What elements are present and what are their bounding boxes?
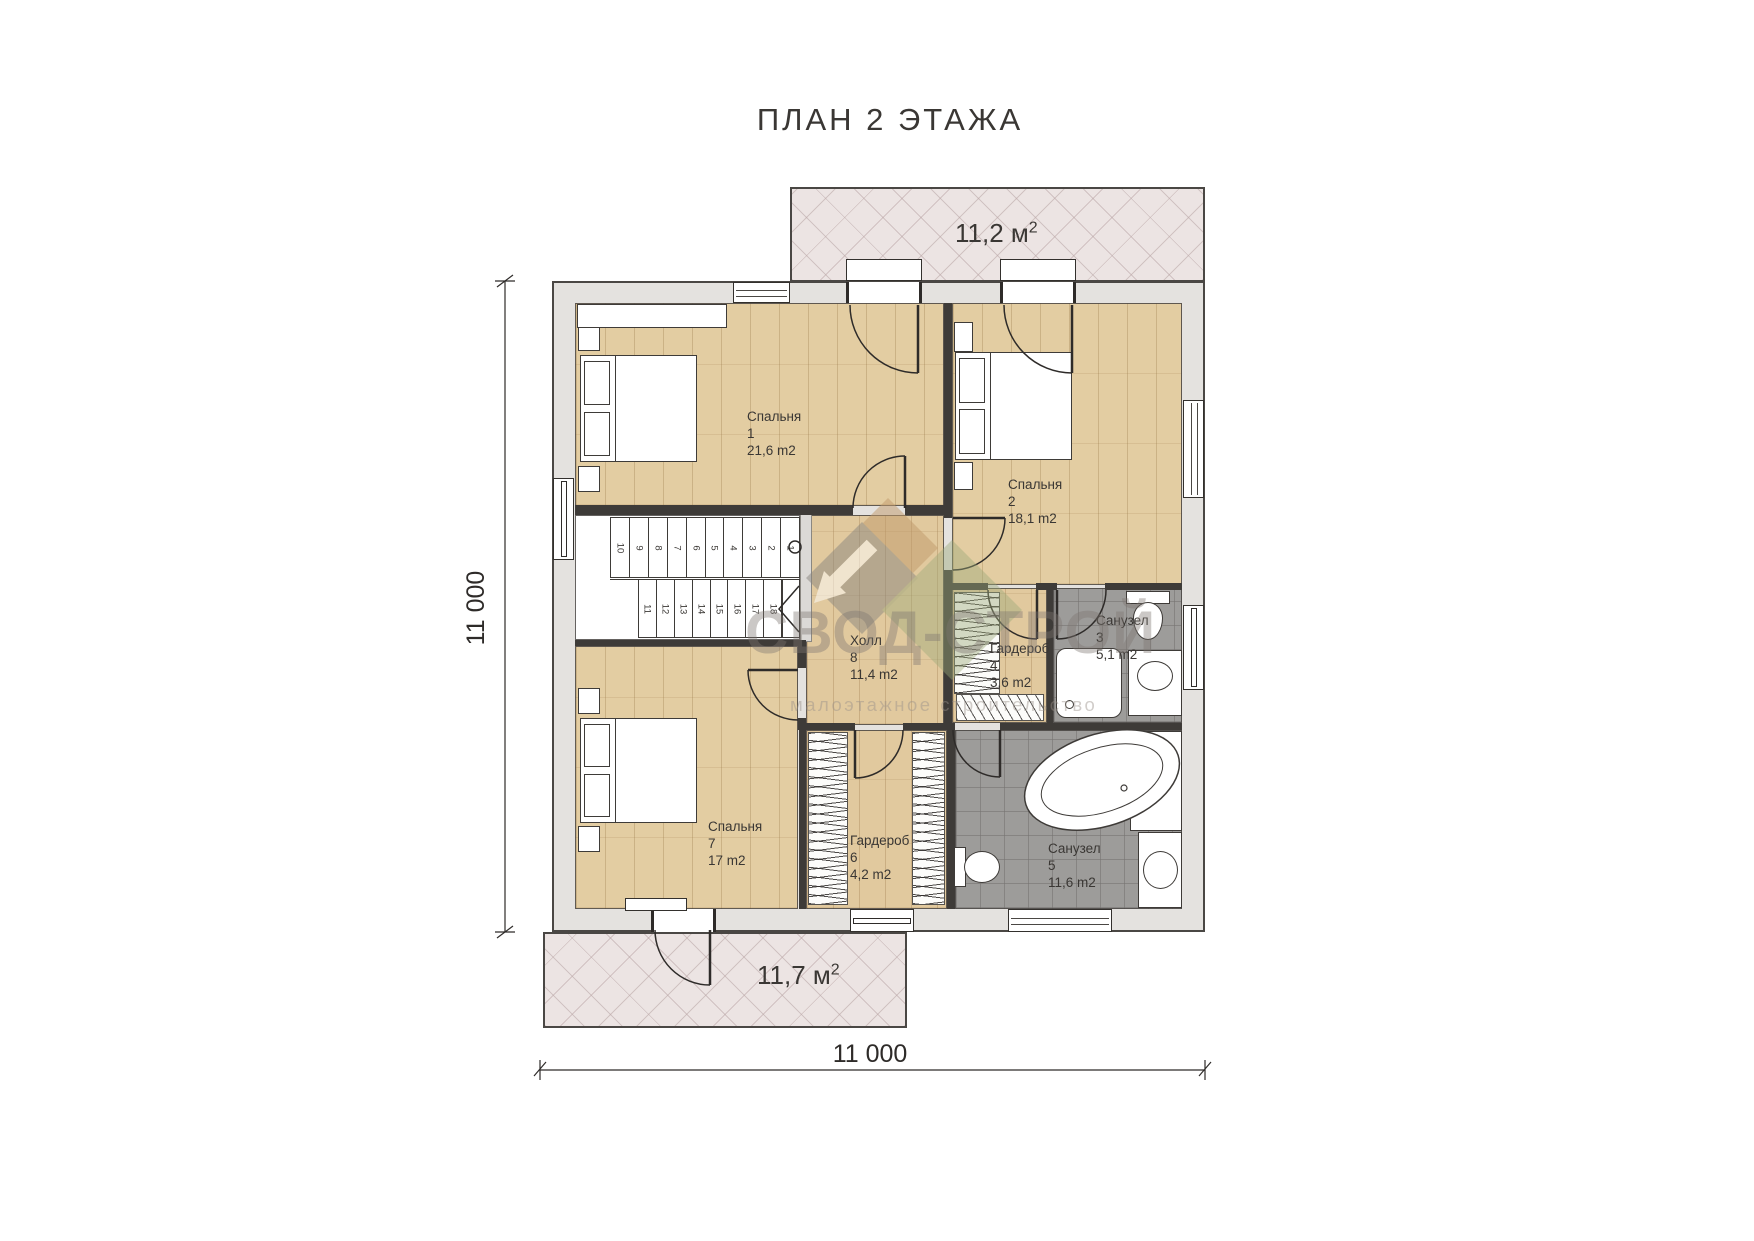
stair-railing <box>800 513 812 642</box>
toilet-bowl-icon <box>964 851 1000 883</box>
stair-flight-up: 10987654321 <box>610 517 800 577</box>
dimension-bottom-label: 11 000 <box>740 1040 1000 1069</box>
nightstand <box>954 462 973 490</box>
stair-step: 11 <box>639 580 657 637</box>
balcony-bottom <box>543 932 907 1028</box>
room-label-bathroom-3: Санузел35,1 m2 <box>1096 612 1149 663</box>
nightstand <box>578 327 600 351</box>
window-bedroom-1 <box>733 282 790 303</box>
bed-bedroom-7 <box>580 718 697 823</box>
sink-basin-icon <box>1143 851 1178 889</box>
window-bathroom-3 <box>1183 605 1204 690</box>
sink-counter-icon <box>1138 832 1182 908</box>
wall-segment <box>944 588 952 723</box>
stair-step: 14 <box>693 580 711 637</box>
stair-step: 5 <box>706 518 725 577</box>
stair-step: 3 <box>743 518 762 577</box>
balcony-door-sill <box>1000 259 1076 281</box>
stair-step: 2 <box>762 518 781 577</box>
wall-segment <box>903 723 955 730</box>
shower-drain-icon <box>1065 700 1074 709</box>
pillow <box>584 774 610 817</box>
balcony-door-opening-bedroom-2 <box>1000 282 1076 303</box>
stair-step: 10 <box>611 518 630 577</box>
stair-step: 4 <box>724 518 743 577</box>
wardrobe-6-rail-right <box>912 732 945 905</box>
bed-divider-line <box>615 356 616 461</box>
room-floor-hall <box>806 515 944 725</box>
wall-segment <box>798 645 806 668</box>
balcony-door-sill <box>846 259 922 281</box>
pillow <box>959 358 985 403</box>
stair-step: 7 <box>668 518 687 577</box>
balcony-top-area-label: 11,2 м2 <box>955 218 1038 249</box>
stair-step: 15 <box>711 580 729 637</box>
wardrobe-4-front-hatch <box>956 694 1044 721</box>
stair-step: 13 <box>675 580 693 637</box>
balcony-door-sill <box>625 898 687 911</box>
wall-segment <box>575 640 806 646</box>
sink-basin-icon <box>1137 661 1173 691</box>
room-label-bedroom-1: Спальня121,6 m2 <box>747 408 801 459</box>
stair-step: 1 <box>781 518 800 577</box>
window-wardrobe-6 <box>850 909 914 932</box>
window-bedroom-2 <box>1183 400 1204 498</box>
wall-segment <box>1105 583 1182 590</box>
stair-step: 16 <box>728 580 746 637</box>
dimension-left-label: 11 000 <box>462 538 491 678</box>
stair-step: 17 <box>746 580 764 637</box>
bathtub-platform <box>1130 731 1182 831</box>
nightstand <box>578 466 600 492</box>
closet-bedroom-1 <box>577 304 727 328</box>
balcony-door-opening-bedroom-7 <box>651 909 716 932</box>
bed-divider-line <box>615 719 616 822</box>
stair-step: 8 <box>649 518 668 577</box>
window-stairwell <box>553 478 574 560</box>
room-label-wardrobe-6: Гардероб64,2 m2 <box>850 832 909 883</box>
stair-arrow-cell <box>782 580 800 638</box>
wardrobe-6-rail-left <box>808 732 848 905</box>
balcony-bottom-area-label: 11,7 м2 <box>757 960 840 991</box>
wall-segment <box>1000 723 1182 730</box>
stair-flight-down: 1112131415161718 <box>638 580 782 638</box>
bed-bedroom-1 <box>580 355 697 462</box>
window-bathroom-5 <box>1008 909 1112 932</box>
pillow <box>584 361 610 405</box>
stair-step: 6 <box>687 518 706 577</box>
stair-step: 18 <box>764 580 782 637</box>
room-label-hall: Холл811,4 m2 <box>850 632 898 683</box>
nightstand <box>578 826 600 852</box>
wall-segment <box>798 723 855 730</box>
pillow <box>959 409 985 454</box>
room-label-bedroom-7: Спальня717 m2 <box>708 818 762 869</box>
wall-segment <box>575 505 853 515</box>
floor-plan-page: ПЛАН 2 ЭТАЖА <box>0 0 1754 1241</box>
nightstand <box>954 322 973 352</box>
balcony-door-opening-bedroom-1 <box>846 282 922 303</box>
bed-divider-line <box>990 353 991 459</box>
stair-step: 9 <box>630 518 649 577</box>
page-title: ПЛАН 2 ЭТАЖА <box>640 102 1140 138</box>
room-label-bathroom-5: Санузел511,6 m2 <box>1048 840 1101 891</box>
room-label-wardrobe-4: Гардероб43,6 m2 <box>990 640 1049 691</box>
wall-segment <box>799 730 806 909</box>
pillow <box>584 724 610 767</box>
bed-bedroom-2 <box>955 352 1072 460</box>
stair-step: 12 <box>657 580 675 637</box>
wall-segment <box>944 303 952 518</box>
wall-segment <box>798 718 806 725</box>
wall-segment <box>947 730 955 909</box>
pillow <box>584 412 610 456</box>
room-label-bedroom-2: Спальня218,1 m2 <box>1008 476 1062 527</box>
nightstand <box>578 688 600 714</box>
